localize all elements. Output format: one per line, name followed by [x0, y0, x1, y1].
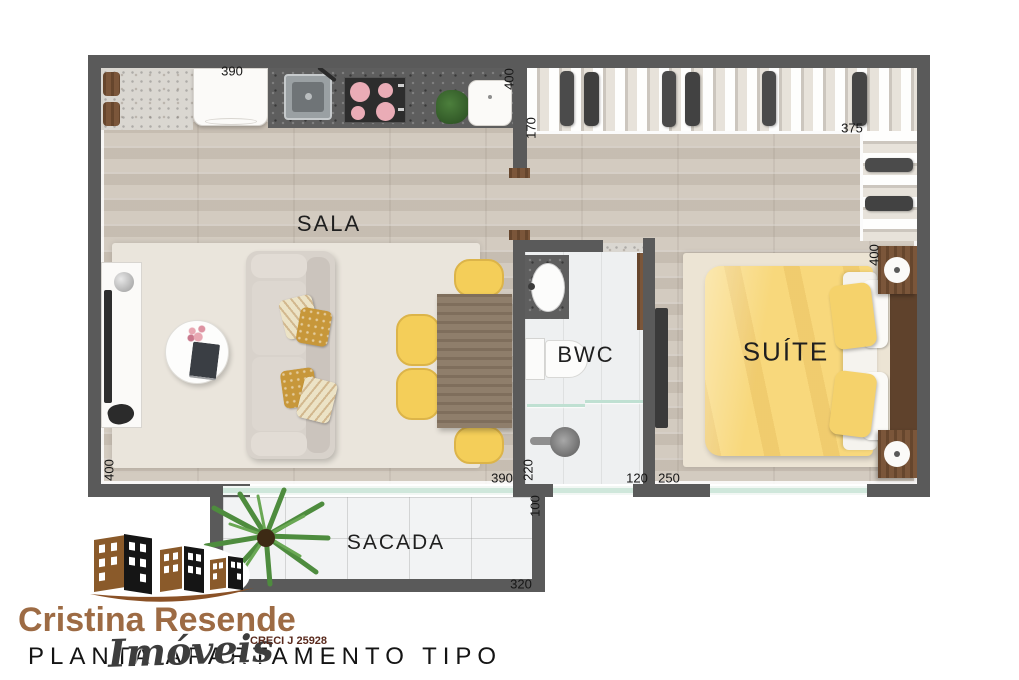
- tub-drain: [488, 95, 492, 99]
- dim-closet-width: 375: [841, 121, 863, 136]
- dining-chair: [454, 426, 504, 464]
- console-decor-vase: [114, 272, 134, 292]
- room-label-sacada: SACADA: [347, 531, 445, 555]
- nightstand-lamp: [884, 257, 910, 283]
- dim-sacada-depth: 100: [528, 495, 543, 517]
- dim-suite-depth: 400: [867, 244, 882, 266]
- cooktop-knob: [398, 84, 404, 87]
- sofa-armrest: [251, 254, 307, 278]
- agency-type-script: Imóveis: [107, 625, 274, 676]
- sofa-armrest: [251, 432, 307, 456]
- wall-left: [88, 55, 101, 497]
- closet-garment: [852, 72, 867, 126]
- dining-table: [437, 294, 512, 428]
- dim-bwc-width: 120: [626, 471, 648, 486]
- sofa-backrest: [306, 257, 330, 453]
- dining-chair: [396, 314, 440, 366]
- bwc-basin: [531, 263, 565, 312]
- closet-garment: [762, 71, 776, 126]
- door-post: [509, 168, 530, 178]
- cooktop-burner: [350, 82, 370, 102]
- room-label-bwc: BWC: [557, 342, 614, 368]
- dining-chair: [454, 259, 504, 297]
- dim-sacada-width: 320: [510, 577, 532, 592]
- closet-right: [860, 131, 920, 241]
- bed-pillow-yellow: [828, 370, 877, 439]
- television: [104, 290, 112, 403]
- wall-bwc-suite-divider: [643, 238, 655, 497]
- bar-stool: [103, 72, 120, 96]
- bwc-door-threshold: [603, 243, 645, 252]
- lamp-finial: [894, 267, 900, 273]
- table-magazines: [189, 341, 220, 380]
- shower-head: [550, 427, 580, 457]
- floor-plan-canvas: SALA BWC SUÍTE SACADA 390 400 170 375 40…: [0, 0, 1019, 680]
- sink-drain: [305, 93, 312, 100]
- closet-garment: [865, 158, 913, 172]
- cooktop-knob: [398, 108, 404, 111]
- basin-faucet: [528, 283, 535, 290]
- sofa: [246, 251, 335, 459]
- shower-glass: [585, 400, 643, 403]
- nightstand-lamp: [884, 441, 910, 467]
- wall-top: [88, 55, 930, 68]
- suite-window: [710, 486, 867, 495]
- creci-number: CRECI J 25928: [250, 635, 327, 647]
- wall-bottom-suite-left: [655, 484, 710, 497]
- dim-bwc-depth: 220: [521, 459, 536, 481]
- refrigerator-handle: [205, 118, 257, 125]
- dim-kitchen-width: 390: [221, 64, 243, 79]
- closet-garment: [662, 71, 676, 127]
- closet-garment: [865, 196, 913, 211]
- cooktop-burner: [376, 102, 395, 121]
- wall-bottom-suite-right: [867, 484, 930, 497]
- closet-garment: [685, 72, 700, 126]
- buildings-logo-icon: [86, 528, 258, 608]
- bed-pillow-yellow: [828, 282, 877, 351]
- dim-service-depth: 400: [502, 68, 517, 90]
- dim-suite-width: 250: [658, 471, 680, 486]
- dim-closet-depth: 170: [524, 117, 539, 139]
- closet-garment: [560, 71, 574, 126]
- dining-chair: [396, 368, 440, 420]
- kitchen-sink: [284, 74, 332, 120]
- cooktop: [344, 77, 406, 123]
- shower-glass: [527, 404, 585, 407]
- toilet-tank: [525, 338, 545, 380]
- bwc-window: [553, 486, 633, 495]
- lamp-finial: [894, 451, 900, 457]
- wall-right: [917, 55, 930, 497]
- door-post: [509, 230, 530, 240]
- suite-tv-panel: [655, 308, 668, 428]
- dim-sala-depth: 400: [102, 459, 117, 481]
- wall-bwc-top: [513, 240, 603, 252]
- cooktop-burner: [351, 106, 365, 120]
- room-label-sala: SALA: [297, 211, 361, 237]
- room-label-suite: SUÍTE: [743, 337, 830, 368]
- cooktop-burner: [378, 83, 393, 98]
- sofa-pillow-mustard: [295, 306, 333, 347]
- bar-stool: [103, 102, 120, 126]
- bed-headboard: [890, 290, 917, 432]
- table-flowers: [185, 323, 209, 343]
- dim-sala-width: 390: [491, 471, 513, 486]
- closet-garment: [584, 72, 599, 126]
